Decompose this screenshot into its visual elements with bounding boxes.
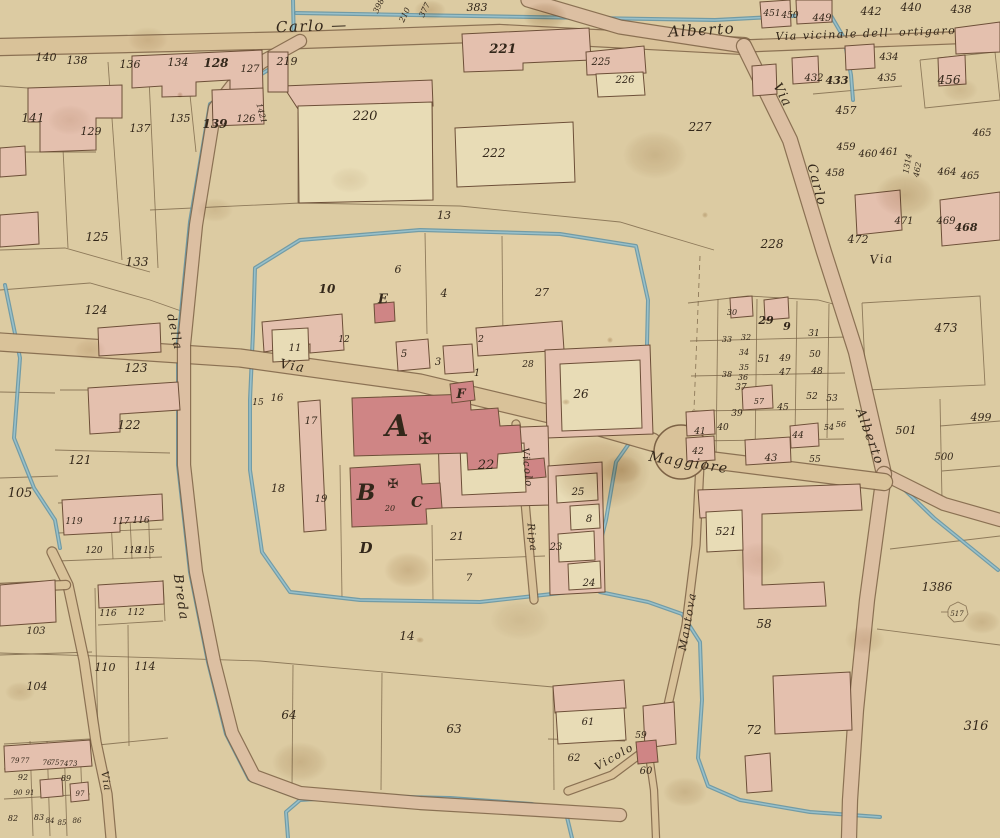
building-letter: D — [358, 539, 372, 557]
parcel-number: 73 — [69, 760, 78, 768]
parcel-number: 83 — [34, 813, 44, 822]
parcel-number: 440 — [900, 1, 922, 14]
parcel-number: 7 — [466, 573, 473, 584]
paper-stain — [197, 198, 233, 222]
paper-stain — [964, 610, 1000, 634]
building-pink — [443, 344, 474, 374]
parcel-number: 116 — [132, 516, 149, 526]
parcel-number: 17 — [305, 416, 318, 427]
parcel-number: 40 — [716, 423, 729, 433]
parcel-number: 521 — [716, 525, 737, 538]
parcel-number: 28 — [521, 360, 534, 370]
parcel-number: 63 — [446, 722, 462, 736]
cross-icon: ✠ — [388, 477, 399, 492]
parcel-number: 133 — [126, 255, 149, 269]
parcel-number: 126 — [236, 114, 256, 125]
building-letter: B — [356, 480, 376, 506]
building-pink — [98, 581, 164, 608]
parcel-number: 90 — [14, 789, 23, 797]
parcel-number: 36 — [738, 373, 748, 382]
parcel-number: 44 — [791, 431, 804, 441]
parcel-number: 119 — [65, 517, 82, 527]
building-pink — [98, 323, 161, 356]
parcel-number: 124 — [85, 303, 108, 317]
parcel-number: 103 — [26, 626, 45, 637]
parcel-number: 112 — [127, 608, 144, 618]
parcel-number: 19 — [315, 494, 328, 505]
building-pink — [0, 580, 56, 626]
parcel-number: 228 — [760, 237, 784, 251]
parcel-number: 51 — [758, 354, 771, 365]
paper-stain — [177, 92, 183, 98]
parcel-number: 33 — [722, 335, 732, 344]
parcel-number: 139 — [202, 117, 228, 131]
parcel-number: 32 — [741, 333, 751, 342]
parcel-number: 221 — [488, 42, 516, 57]
parcel-number: 29 — [757, 314, 774, 327]
paper-stain — [602, 455, 642, 485]
cadastral-map-page: 1401381361341281272191411291371351391261… — [0, 0, 1000, 838]
parcel-number: 105 — [8, 486, 33, 501]
parcel-number: 55 — [809, 455, 821, 465]
parcel-number: 30 — [727, 308, 737, 317]
parcel-number: 59 — [635, 731, 647, 741]
parcel-number: 117 — [112, 517, 129, 527]
street-name: Alberto — [666, 19, 736, 41]
building-pink — [40, 778, 63, 798]
parcel-number: 222 — [482, 146, 506, 160]
parcel-number: 47 — [778, 368, 791, 378]
parcel-number: 501 — [896, 424, 917, 437]
building-pink — [0, 212, 39, 247]
parcel-number: 383 — [467, 1, 488, 14]
parcel-number: 79 — [11, 757, 20, 765]
parcel-number: 11 — [289, 343, 302, 354]
parcel-number: 110 — [95, 661, 116, 674]
parcel-number: 227 — [688, 120, 712, 134]
parcel-number: 451 — [762, 9, 780, 19]
parcel-number: 2 — [477, 335, 484, 345]
building-white — [455, 122, 575, 187]
parcel-number: 433 — [826, 74, 849, 87]
building-pink — [4, 740, 92, 772]
building-letter: F — [455, 387, 466, 402]
paper-stain — [607, 337, 613, 343]
building-white — [560, 360, 642, 431]
paper-stain — [74, 339, 106, 361]
parcel-number: 61 — [582, 717, 595, 728]
paper-stain — [942, 78, 978, 102]
parcel-number: 137 — [130, 122, 151, 135]
parcel-number: 473 — [934, 321, 958, 335]
parcel-number: 134 — [168, 56, 189, 69]
parcel-number: 22 — [477, 458, 495, 473]
parcel-number: 140 — [36, 51, 57, 64]
parcel-number: 45 — [776, 403, 789, 413]
parcel-number: 450 — [780, 11, 798, 21]
parcel-number: 31 — [808, 329, 819, 339]
parcel-number: 86 — [73, 817, 82, 825]
parcel-number: 123 — [125, 361, 148, 375]
parcel-number: 500 — [934, 452, 954, 463]
parcel-number: 461 — [878, 147, 898, 158]
parcel-number: 72 — [746, 723, 761, 737]
parcel-number: 434 — [878, 52, 898, 63]
parcel-number: 85 — [58, 819, 67, 827]
paper-stain — [562, 399, 570, 405]
parcel-number: 135 — [170, 112, 191, 125]
paper-stain — [128, 27, 168, 53]
parcel-number: 56 — [836, 420, 846, 429]
parcel-number: 20 — [384, 504, 395, 513]
parcel-number: 468 — [955, 221, 978, 234]
parcel-number: 1386 — [922, 580, 953, 594]
parcel-number: 225 — [590, 57, 610, 68]
parcel-number: 141 — [22, 111, 45, 125]
parcel-number: 49 — [778, 354, 791, 364]
parcel-number: 37 — [735, 383, 747, 393]
parcel-number: 3 — [435, 357, 441, 368]
parcel-number: 18 — [271, 482, 285, 495]
parcel-number: 1 — [474, 368, 480, 379]
parcel-number: 459 — [835, 142, 856, 153]
parcel-number: 16 — [271, 393, 284, 404]
paper-stain — [845, 626, 885, 654]
parcel-number: 8 — [586, 514, 592, 525]
parcel-number: 23 — [549, 542, 563, 553]
parcel-number: 6 — [395, 263, 402, 276]
parcel-number: 21 — [449, 530, 464, 543]
parcel-number: 62 — [568, 753, 581, 764]
paper-stain — [384, 552, 432, 588]
parcel-number: 449 — [811, 13, 832, 24]
parcel-number: 465 — [971, 128, 991, 139]
parcel-number: 442 — [860, 5, 882, 18]
parcel-number: 471 — [893, 216, 913, 227]
parcel-number: 128 — [203, 56, 229, 70]
building-red — [636, 740, 658, 764]
paper-stain — [523, 2, 567, 30]
parcel-number: 34 — [739, 348, 749, 357]
parcel-number: 465 — [959, 171, 979, 182]
parcel-number: 14 — [399, 629, 414, 643]
building-pink — [0, 146, 26, 177]
parcel-number: 226 — [614, 75, 635, 86]
parcel-number: 60 — [640, 766, 653, 777]
parcel-number: 12 — [338, 335, 350, 345]
parcel-number: 84 — [46, 817, 55, 825]
parcel-number: 121 — [69, 453, 92, 467]
parcel-number: 48 — [810, 367, 823, 377]
paper-stain — [490, 600, 550, 640]
parcel-number: 58 — [756, 617, 772, 631]
parcel-number: 53 — [826, 394, 838, 404]
building-letter: E — [377, 292, 389, 307]
parcel-number: 122 — [118, 418, 141, 432]
parcel-number: 517 — [950, 610, 964, 618]
parcel-number: 27 — [534, 286, 549, 299]
paper-stain — [330, 167, 370, 193]
parcel-number: 469 — [935, 216, 956, 227]
parcel-number: 4 — [440, 287, 448, 300]
parcel-number: 435 — [876, 73, 896, 84]
parcel-number: 219 — [276, 55, 298, 68]
parcel-number: 120 — [85, 546, 102, 556]
cadastral-map: 1401381361341281272191411291371351391261… — [0, 0, 1000, 838]
parcel-number: 114 — [135, 660, 156, 673]
parcel-number: 54 — [824, 423, 834, 432]
building-letter: C — [411, 493, 423, 511]
parcel-number: 50 — [809, 350, 821, 360]
parcel-number: 39 — [731, 409, 743, 419]
parcel-number: 74 — [60, 760, 69, 768]
parcel-number: 91 — [26, 789, 35, 797]
parcel-number: 41 — [693, 427, 705, 437]
paper-stain — [272, 742, 328, 782]
parcel-number: 97 — [76, 790, 85, 798]
parcel-number: 82 — [8, 814, 18, 823]
parcel-number: 220 — [352, 109, 378, 124]
building-pink — [955, 22, 1000, 54]
building-pink — [745, 753, 772, 793]
parcel-number: 13 — [437, 209, 451, 222]
paper-stain — [702, 212, 708, 218]
building-pink — [845, 44, 875, 70]
parcel-number: 457 — [835, 104, 857, 117]
parcel-number: 24 — [582, 578, 596, 589]
parcel-number: 38 — [722, 370, 732, 379]
parcel-number: 43 — [764, 453, 778, 464]
parcel-number: 127 — [240, 64, 260, 75]
paper-stain — [875, 173, 935, 217]
parcel-number: 10 — [319, 282, 336, 296]
parcel-number: 15 — [252, 398, 264, 408]
paper-stain — [416, 637, 424, 643]
street-name: Carlo — — [276, 16, 348, 36]
parcel-number: 499 — [970, 411, 992, 424]
building-letter: A — [382, 409, 408, 444]
parcel-number: 9 — [783, 320, 791, 333]
parcel-number: 136 — [120, 58, 141, 71]
paper-stain — [5, 682, 35, 702]
parcel-number: 472 — [847, 233, 869, 246]
parcel-number: 125 — [86, 230, 109, 244]
parcel-number: 116 — [99, 609, 116, 619]
parcel-number: 64 — [281, 708, 296, 722]
paper-stain — [414, 0, 446, 20]
paper-stain — [48, 105, 92, 135]
parcel-number: 77 — [21, 757, 30, 765]
parcel-number: 138 — [67, 54, 88, 67]
parcel-number: 464 — [936, 167, 956, 178]
paper-stain — [663, 777, 707, 807]
parcel-number: 52 — [806, 392, 818, 402]
building-white — [558, 531, 595, 562]
parcel-number: 458 — [824, 168, 844, 179]
parcel-number: 316 — [964, 719, 989, 734]
parcel-number: 26 — [572, 387, 589, 401]
parcel-number: 115 — [137, 546, 154, 556]
parcel-number: 460 — [857, 149, 878, 160]
cross-icon: ✠ — [418, 429, 431, 448]
parcel-number: 432 — [803, 73, 823, 84]
parcel-number: 57 — [754, 397, 765, 406]
paper-stain — [623, 131, 687, 179]
parcel-number: 438 — [950, 3, 972, 16]
parcel-number: 92 — [18, 773, 28, 782]
parcel-number: 5 — [401, 349, 407, 360]
paper-stain — [735, 542, 785, 578]
parcel-number: 35 — [739, 363, 749, 372]
street-name: Via — [869, 251, 894, 267]
parcel-number: 89 — [61, 774, 71, 783]
building-pink — [773, 672, 852, 734]
